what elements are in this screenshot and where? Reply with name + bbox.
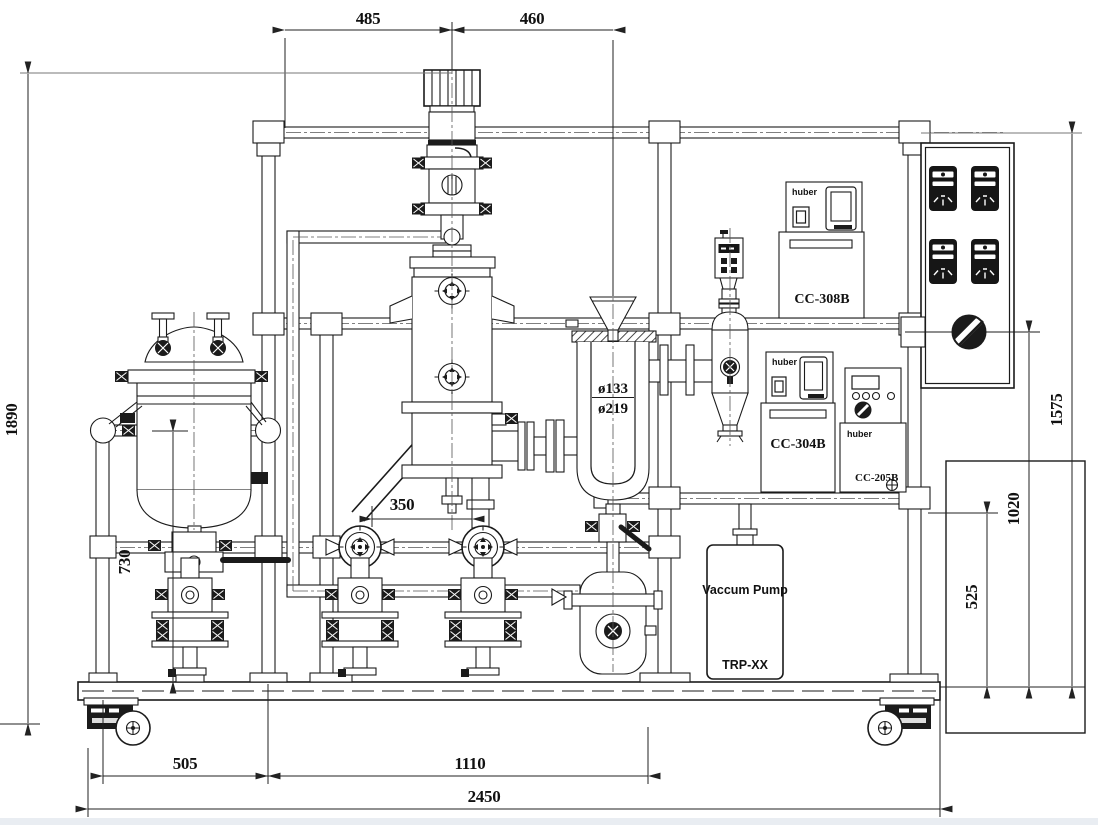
engineering-drawing: ø133 ø219 [0,0,1098,825]
control-panel [901,143,1040,388]
base-platform [78,673,940,700]
chiller-cc308b: huber CC-308B [779,182,864,318]
dim-1890: 1890 [2,404,21,437]
vacuum-pump-model: TRP-XX [722,658,769,672]
dim-1575: 1575 [1047,394,1066,427]
panel-meter-2 [971,166,999,211]
chiller-cc304b-model: CC-304B [770,437,825,452]
chiller-cc308b-brand: huber [792,187,817,197]
dim-730: 730 [115,550,134,575]
chiller-cc308b-model: CC-308B [794,292,849,307]
controller-cc205b: huber CC-205B [840,368,906,492]
wiped-film-evaporator [352,35,578,530]
chiller-cc304b: huber CC-304B [761,352,835,492]
dim-2450: 2450 [468,787,501,806]
panel-meter-1 [929,166,957,211]
caster-front-left [84,698,150,745]
dim-505: 505 [173,754,198,773]
cyclone-separator [712,228,748,446]
dim-485: 485 [356,9,381,28]
tank-drain-station [152,558,228,677]
vacuum-gauge-controller [715,230,743,278]
frame-post-right [908,122,921,682]
panel-meter-3 [929,239,957,284]
chiller-cc304b-brand: huber [772,357,797,367]
dim-1020: 1020 [1004,493,1023,526]
panel-meter-4 [971,239,999,284]
feed-tank [109,312,288,572]
vacuum-pump: Vaccum Pump TRP-XX [702,504,788,679]
controller-cc205b-brand: huber [847,429,872,439]
frame-post-2 [262,122,275,682]
vacuum-pump-label: Vaccum Pump [702,583,788,597]
dim-460: 460 [520,9,545,28]
dim-1110: 1110 [455,754,486,773]
dim-350: 350 [390,495,415,514]
panel-rotary-switch [953,316,986,349]
caster-front-right [868,698,934,745]
gear-pump-2 [445,526,521,677]
window-bottom-edge [0,818,1098,825]
dim-525: 525 [962,585,981,610]
